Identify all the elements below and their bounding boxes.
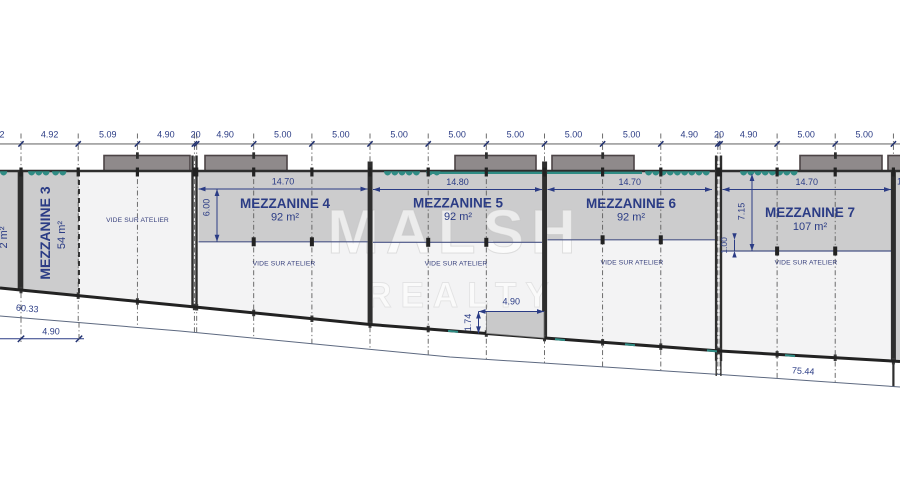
svg-text:VIDE SUR ATELIER: VIDE SUR ATELIER bbox=[425, 261, 488, 268]
svg-text:4.90: 4.90 bbox=[216, 130, 234, 140]
svg-text:4.90: 4.90 bbox=[42, 327, 60, 337]
svg-text:MEZZANINE 7: MEZZANINE 7 bbox=[765, 205, 855, 220]
svg-text:5.00: 5.00 bbox=[507, 130, 525, 140]
svg-text:92 m²: 92 m² bbox=[444, 211, 472, 223]
svg-text:4.90: 4.90 bbox=[681, 130, 699, 140]
svg-text:5.00: 5.00 bbox=[448, 130, 466, 140]
svg-text:4.90: 4.90 bbox=[740, 130, 758, 140]
svg-text:5.00: 5.00 bbox=[856, 130, 874, 140]
svg-text:92 m²: 92 m² bbox=[617, 212, 645, 224]
svg-text:5.00: 5.00 bbox=[332, 130, 350, 140]
svg-text:MEZZANINE 3: MEZZANINE 3 bbox=[37, 186, 53, 280]
svg-text:92 m²: 92 m² bbox=[271, 212, 299, 224]
svg-text:7.15: 7.15 bbox=[737, 203, 747, 221]
svg-text:2 m²: 2 m² bbox=[0, 226, 10, 248]
svg-text:4.90: 4.90 bbox=[157, 130, 175, 140]
svg-text:14.70: 14.70 bbox=[618, 177, 641, 187]
svg-text:MEZZANINE 6: MEZZANINE 6 bbox=[586, 196, 676, 211]
svg-text:14.70: 14.70 bbox=[272, 177, 295, 187]
svg-text:1.74: 1.74 bbox=[463, 314, 473, 332]
svg-text:5.00: 5.00 bbox=[565, 130, 583, 140]
svg-text:4.90: 4.90 bbox=[502, 297, 520, 307]
svg-text:6.00: 6.00 bbox=[202, 199, 212, 217]
svg-text:5.09: 5.09 bbox=[99, 130, 117, 140]
svg-text:VIDE SUR ATELIER: VIDE SUR ATELIER bbox=[775, 260, 838, 267]
svg-text:14.80: 14.80 bbox=[446, 177, 469, 187]
svg-text:1.00: 1.00 bbox=[719, 237, 729, 254]
svg-text:20: 20 bbox=[191, 130, 201, 140]
svg-text:75.44: 75.44 bbox=[792, 365, 815, 376]
svg-text:MEZZANINE 5: MEZZANINE 5 bbox=[413, 196, 503, 211]
svg-text:MEZZANINE 4: MEZZANINE 4 bbox=[240, 196, 330, 211]
svg-text:107 m²: 107 m² bbox=[793, 221, 828, 233]
svg-text:5.00: 5.00 bbox=[390, 130, 408, 140]
svg-text:VIDE SUR ATELIER: VIDE SUR ATELIER bbox=[106, 217, 169, 224]
svg-text:2: 2 bbox=[0, 130, 5, 140]
svg-text:5.00: 5.00 bbox=[797, 130, 815, 140]
svg-text:VIDE SUR ATELIER: VIDE SUR ATELIER bbox=[601, 260, 664, 267]
svg-text:5.00: 5.00 bbox=[623, 130, 641, 140]
svg-text:4.92: 4.92 bbox=[41, 130, 59, 140]
svg-text:REALTY: REALTY bbox=[366, 276, 557, 315]
svg-text:VIDE SUR ATELIER: VIDE SUR ATELIER bbox=[253, 261, 316, 268]
svg-text:60.33: 60.33 bbox=[16, 303, 39, 315]
svg-text:14.70: 14.70 bbox=[795, 177, 818, 187]
svg-text:5.00: 5.00 bbox=[274, 130, 292, 140]
svg-text:54 m²: 54 m² bbox=[56, 221, 68, 249]
svg-text:20: 20 bbox=[714, 130, 724, 140]
